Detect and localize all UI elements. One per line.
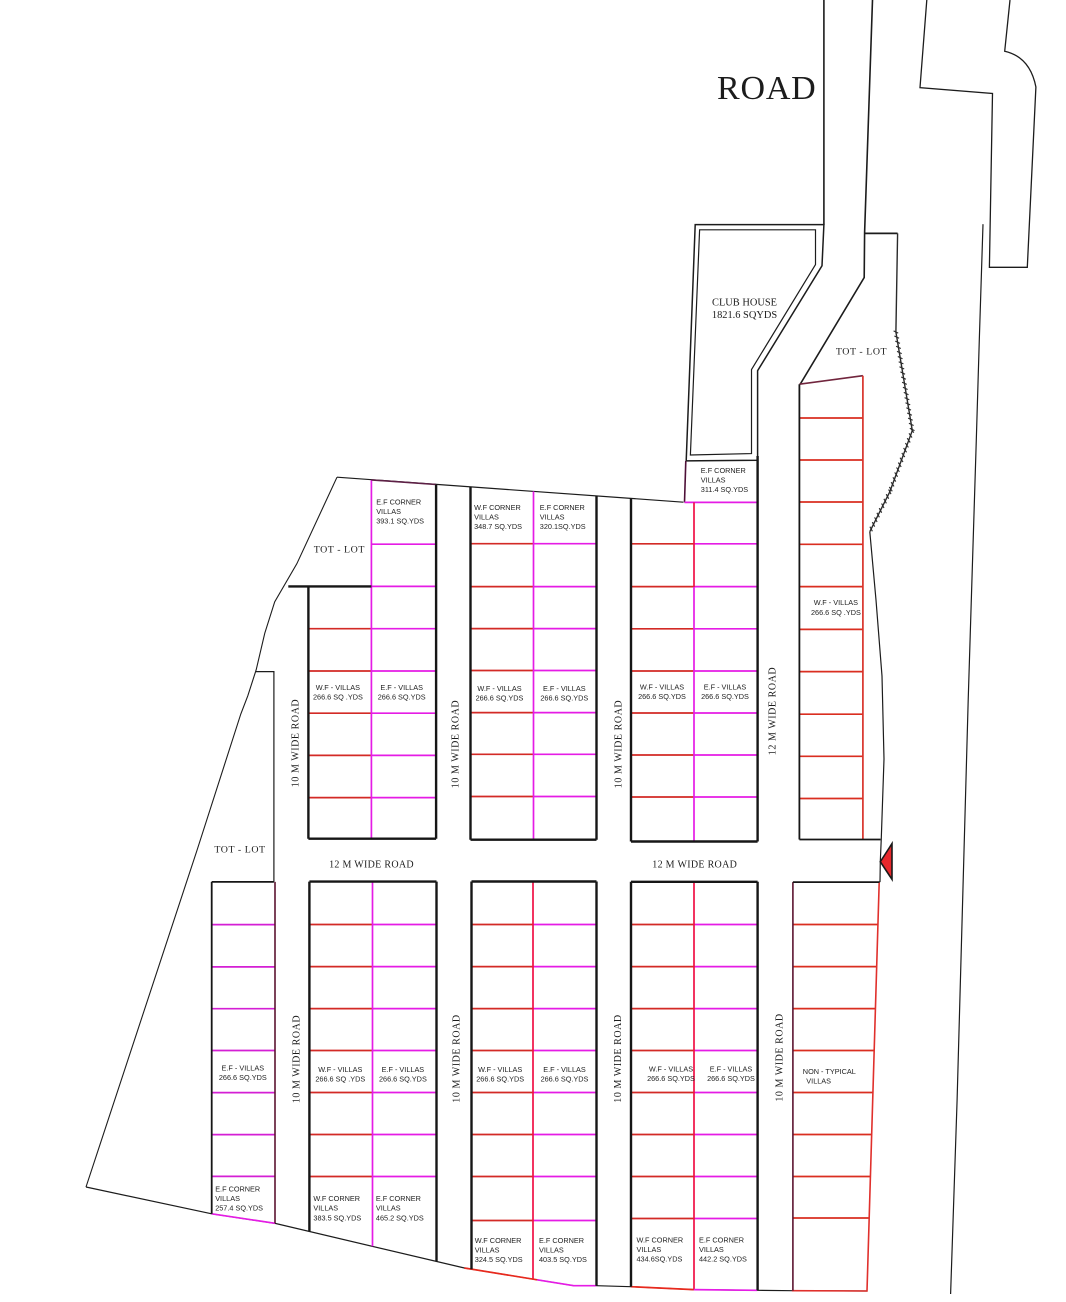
- svg-text:VILLAS: VILLAS: [215, 1194, 240, 1203]
- svg-text:W.F - VILLAS: W.F - VILLAS: [478, 1065, 522, 1074]
- svg-text:E.F CORNER: E.F CORNER: [376, 1194, 421, 1203]
- svg-text:VILLAS: VILLAS: [540, 513, 565, 522]
- svg-text:TOT - LOT: TOT - LOT: [214, 845, 265, 856]
- svg-text:VILLAS: VILLAS: [637, 1245, 662, 1254]
- svg-text:434.6SQ.YDS: 434.6SQ.YDS: [637, 1255, 683, 1264]
- svg-text:10 M WIDE ROAD: 10 M WIDE ROAD: [452, 1014, 463, 1102]
- svg-text:12 M WIDE ROAD: 12 M WIDE ROAD: [652, 860, 737, 871]
- svg-text:266.6 SQ.YDS: 266.6 SQ.YDS: [638, 692, 686, 701]
- svg-text:E.F - VILLAS: E.F - VILLAS: [380, 683, 423, 692]
- svg-text:E.F - VILLAS: E.F - VILLAS: [543, 684, 586, 693]
- svg-text:VILLAS: VILLAS: [474, 513, 499, 522]
- svg-text:VILLAS: VILLAS: [699, 1245, 724, 1254]
- svg-text:266.6 SQ.YDS: 266.6 SQ.YDS: [476, 693, 524, 702]
- svg-text:320.1SQ.YDS: 320.1SQ.YDS: [540, 522, 586, 531]
- svg-text:10 M WIDE ROAD: 10 M WIDE ROAD: [774, 1013, 785, 1101]
- svg-text:393.1 SQ.YDS: 393.1 SQ.YDS: [376, 517, 424, 526]
- svg-text:TOT - LOT: TOT - LOT: [836, 347, 887, 358]
- svg-text:257.4 SQ.YDS: 257.4 SQ.YDS: [215, 1204, 263, 1213]
- svg-text:VILLAS: VILLAS: [806, 1077, 831, 1086]
- svg-text:266.6 SQ .YDS: 266.6 SQ .YDS: [811, 608, 861, 617]
- svg-text:348.7 SQ.YDS: 348.7 SQ.YDS: [474, 522, 522, 531]
- svg-text:W.F CORNER: W.F CORNER: [637, 1236, 684, 1245]
- svg-text:1821.6 SQYDS: 1821.6 SQYDS: [712, 310, 777, 321]
- svg-text:E.F CORNER: E.F CORNER: [699, 1236, 744, 1245]
- svg-text:W.F - VILLAS: W.F - VILLAS: [649, 1065, 693, 1074]
- svg-text:12 M WIDE ROAD: 12 M WIDE ROAD: [767, 667, 778, 755]
- svg-text:10 M WIDE ROAD: 10 M WIDE ROAD: [450, 700, 461, 788]
- svg-text:VILLAS: VILLAS: [475, 1245, 500, 1254]
- svg-text:E.F - VILLAS: E.F - VILLAS: [710, 1065, 753, 1074]
- svg-text:W.F CORNER: W.F CORNER: [475, 1236, 522, 1245]
- svg-text:10 M WIDE ROAD: 10 M WIDE ROAD: [613, 700, 624, 788]
- svg-text:266.6 SQ.YDS: 266.6 SQ.YDS: [219, 1073, 267, 1082]
- svg-text:311.4 SQ.YDS: 311.4 SQ.YDS: [701, 485, 748, 494]
- svg-text:266.6 SQ .YDS: 266.6 SQ .YDS: [315, 1074, 365, 1083]
- svg-text:E.F CORNER: E.F CORNER: [376, 497, 421, 506]
- svg-text:266.6 SQ.YDS: 266.6 SQ.YDS: [541, 1074, 589, 1083]
- svg-text:266.6 SQ .YDS: 266.6 SQ .YDS: [313, 693, 363, 702]
- svg-text:266.6 SQ.YDS: 266.6 SQ.YDS: [379, 1074, 427, 1083]
- svg-text:12 M WIDE ROAD: 12 M WIDE ROAD: [329, 860, 414, 871]
- svg-text:W.F CORNER: W.F CORNER: [474, 503, 521, 512]
- svg-text:W.F - VILLAS: W.F - VILLAS: [477, 684, 521, 693]
- svg-text:VILLAS: VILLAS: [701, 475, 726, 484]
- svg-text:266.6 SQ.YDS: 266.6 SQ.YDS: [701, 692, 749, 701]
- svg-text:E.F CORNER: E.F CORNER: [701, 466, 746, 475]
- svg-text:W.F - VILLAS: W.F - VILLAS: [814, 598, 858, 607]
- svg-text:TOT - LOT: TOT - LOT: [314, 544, 365, 555]
- svg-text:383.5 SQ.YDS: 383.5 SQ.YDS: [313, 1213, 361, 1222]
- svg-text:266.6 SQ.YDS: 266.6 SQ.YDS: [647, 1074, 695, 1083]
- svg-text:VILLAS: VILLAS: [313, 1204, 338, 1213]
- svg-text:NON - TYPICAL: NON - TYPICAL: [803, 1067, 856, 1076]
- svg-text:403.5 SQ.YDS: 403.5 SQ.YDS: [539, 1255, 587, 1264]
- svg-text:W.F CORNER: W.F CORNER: [313, 1194, 360, 1203]
- svg-text:E.F - VILLAS: E.F - VILLAS: [222, 1064, 265, 1073]
- svg-text:ROAD: ROAD: [717, 70, 817, 107]
- svg-text:442.2 SQ.YDS: 442.2 SQ.YDS: [699, 1255, 747, 1264]
- svg-text:324.5 SQ.YDS: 324.5 SQ.YDS: [475, 1255, 523, 1264]
- svg-text:266.6 SQ.YDS: 266.6 SQ.YDS: [707, 1074, 755, 1083]
- svg-text:10 M WIDE ROAD: 10 M WIDE ROAD: [291, 1015, 302, 1103]
- svg-text:W.F - VILLAS: W.F - VILLAS: [316, 683, 360, 692]
- svg-text:E.F - VILLAS: E.F - VILLAS: [704, 682, 747, 691]
- svg-text:10 M WIDE ROAD: 10 M WIDE ROAD: [613, 1014, 624, 1102]
- svg-text:CLUB HOUSE: CLUB HOUSE: [712, 298, 777, 309]
- svg-text:465.2 SQ.YDS: 465.2 SQ.YDS: [376, 1213, 424, 1222]
- svg-text:10 M WIDE ROAD: 10 M WIDE ROAD: [290, 699, 301, 787]
- svg-text:E.F CORNER: E.F CORNER: [539, 1236, 584, 1245]
- svg-text:266.6 SQ.YDS: 266.6 SQ.YDS: [378, 693, 426, 702]
- svg-text:E.F CORNER: E.F CORNER: [540, 503, 585, 512]
- svg-text:E.F CORNER: E.F CORNER: [215, 1184, 260, 1193]
- svg-text:E.F - VILLAS: E.F - VILLAS: [543, 1065, 586, 1074]
- svg-text:E.F - VILLAS: E.F - VILLAS: [382, 1065, 425, 1074]
- svg-text:VILLAS: VILLAS: [539, 1245, 564, 1254]
- svg-text:W.F - VILLAS: W.F - VILLAS: [318, 1065, 362, 1074]
- svg-text:266.6 SQ.YDS: 266.6 SQ.YDS: [540, 693, 588, 702]
- svg-text:W.F - VILLAS: W.F - VILLAS: [640, 682, 684, 691]
- svg-text:VILLAS: VILLAS: [376, 507, 401, 516]
- svg-text:VILLAS: VILLAS: [376, 1204, 401, 1213]
- svg-text:266.6 SQ.YDS: 266.6 SQ.YDS: [476, 1074, 524, 1083]
